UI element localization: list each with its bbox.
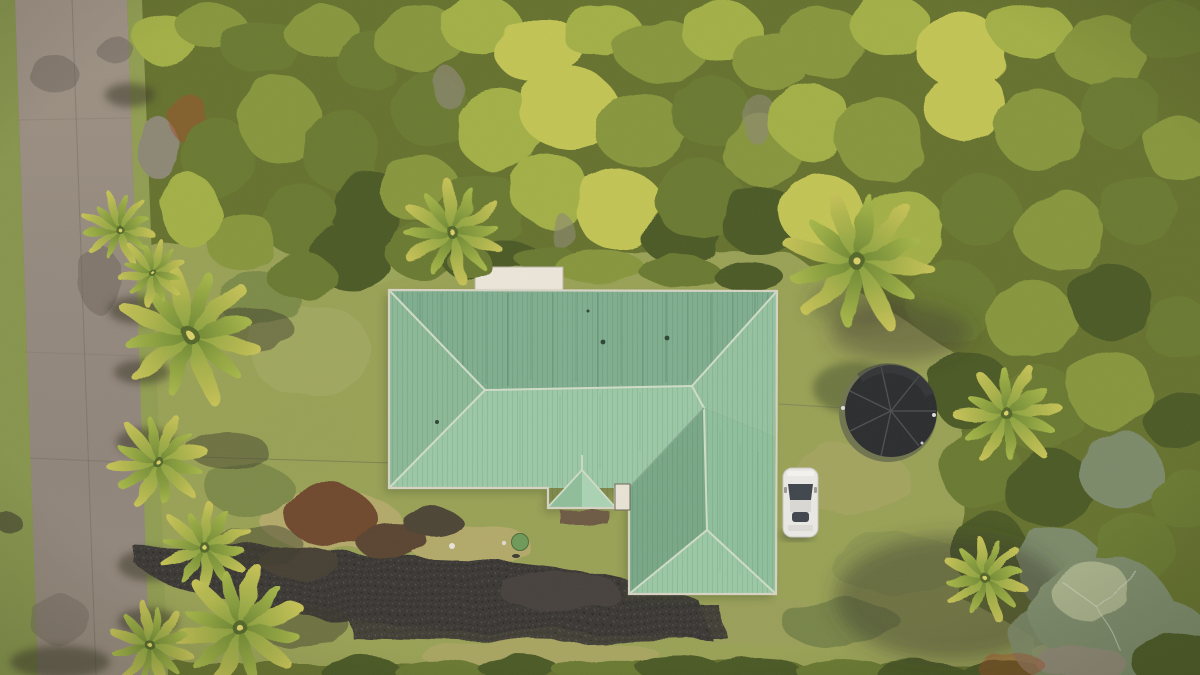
aerial-photo: [0, 0, 1200, 675]
vignette: [0, 0, 1200, 675]
